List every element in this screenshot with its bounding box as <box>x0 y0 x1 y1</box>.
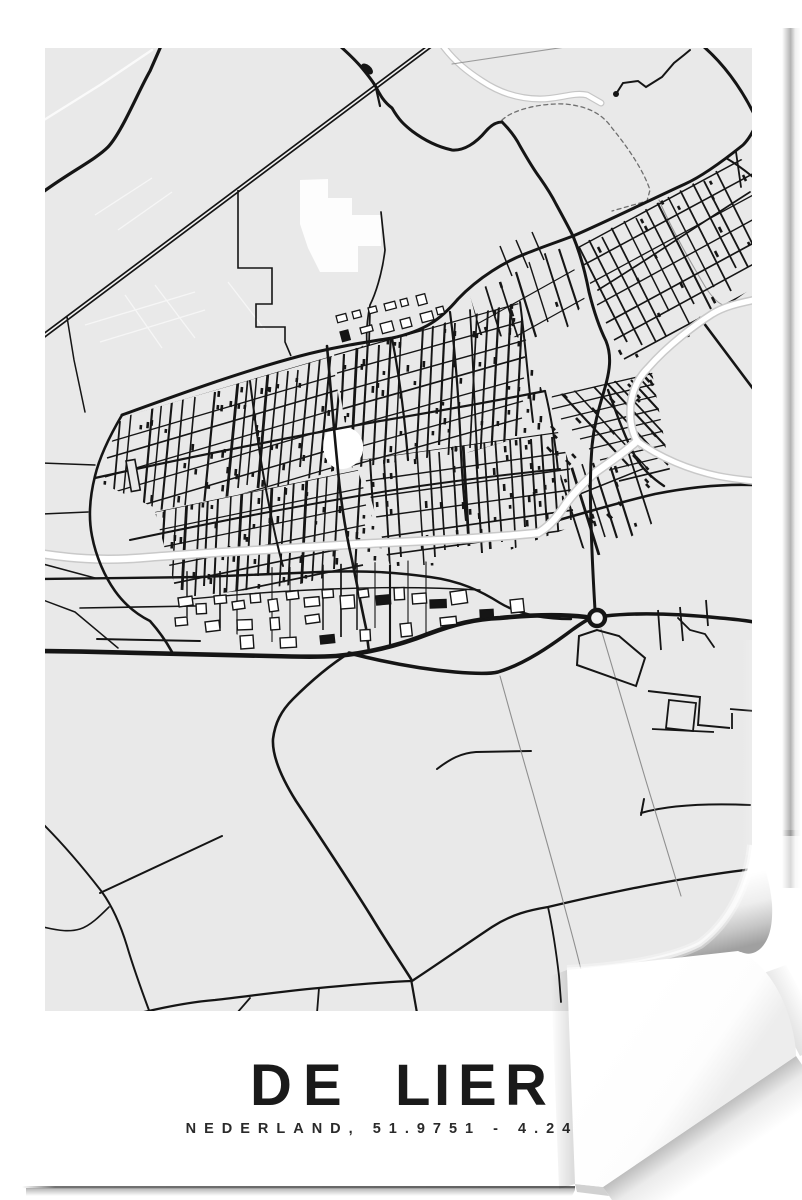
svg-text:NEDERLAND, 51.9751 - 4.2486: NEDERLAND, 51.9751 - 4.2486 <box>186 1121 611 1137</box>
